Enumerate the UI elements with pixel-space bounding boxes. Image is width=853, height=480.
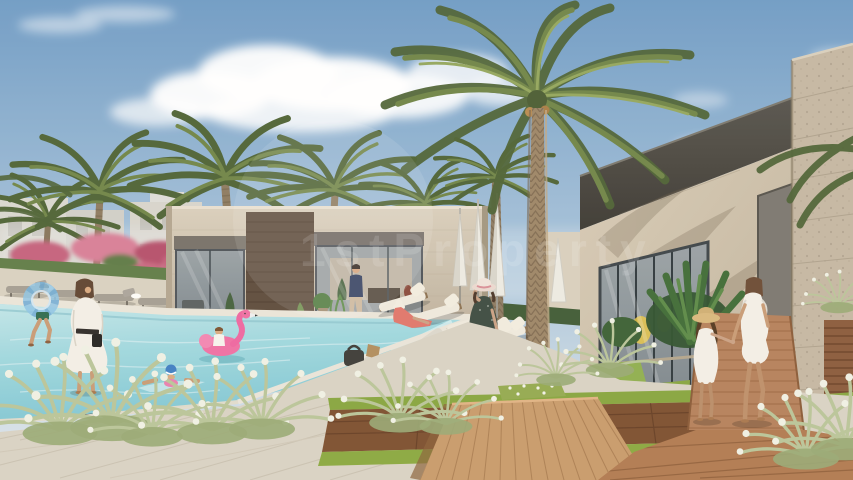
watermark-circle — [233, 120, 433, 320]
pool-clubhouse-rendering: 1stProperty — [0, 0, 853, 480]
watermark-text: 1stProperty — [300, 224, 655, 276]
